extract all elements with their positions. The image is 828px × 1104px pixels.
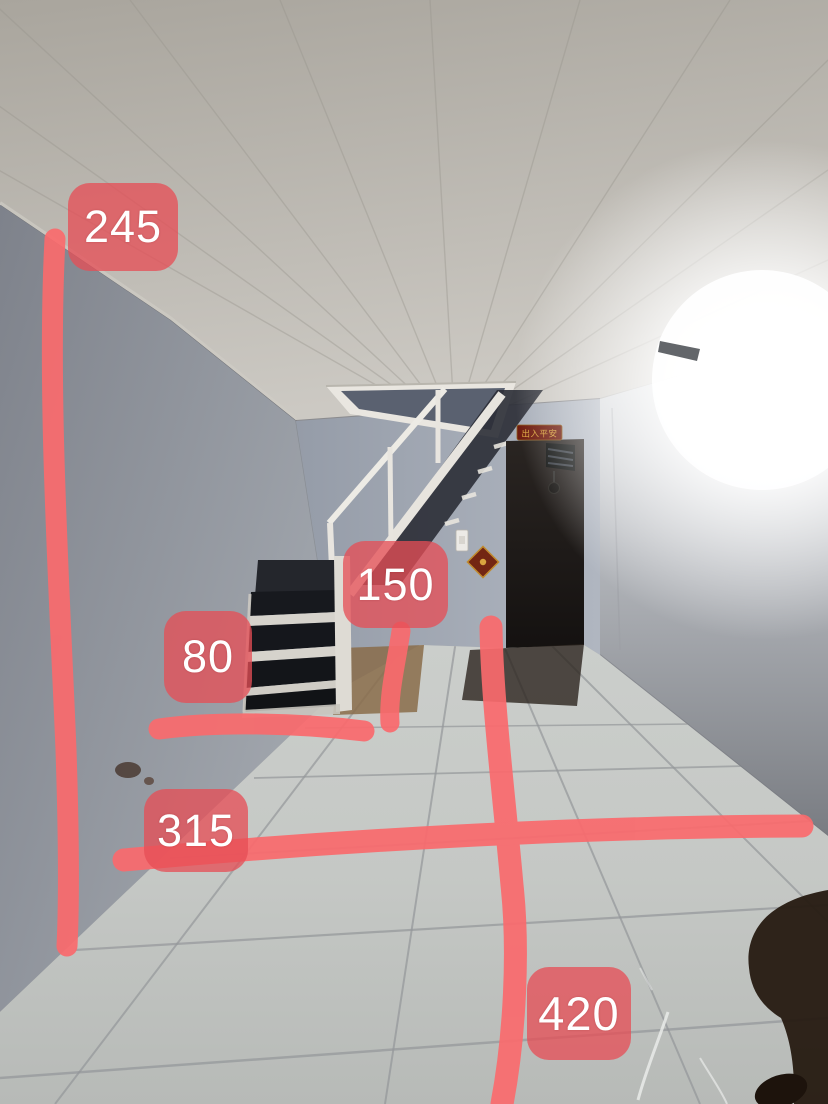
floor-smudge bbox=[115, 762, 141, 778]
measurement-label-315: 315 bbox=[144, 789, 248, 872]
lower-stair-flight bbox=[242, 556, 352, 718]
measurement-label-245: 245 bbox=[68, 183, 178, 271]
railing-post bbox=[390, 447, 391, 545]
measure-line-150-vertical bbox=[390, 631, 401, 723]
annotated-room-photo: 出入平安 bbox=[0, 0, 828, 1104]
measurement-label-80: 80 bbox=[164, 611, 252, 703]
measurement-label-420: 420 bbox=[527, 967, 631, 1060]
measure-line-80-horizontal bbox=[159, 724, 364, 731]
measurement-label-150: 150 bbox=[343, 541, 448, 628]
